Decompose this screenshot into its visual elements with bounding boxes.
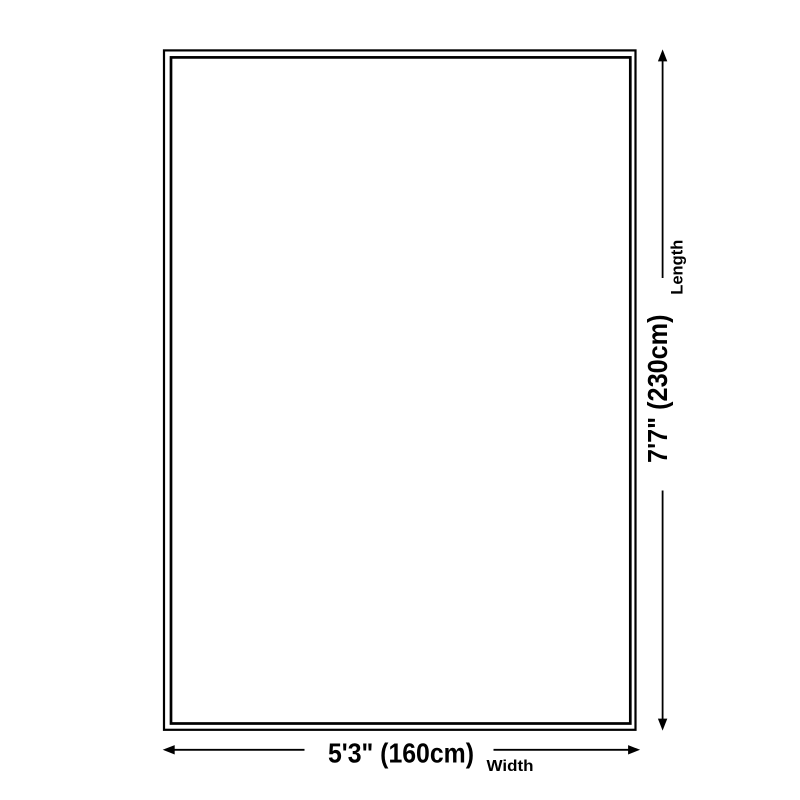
svg-text:7'7" (230cm): 7'7" (230cm) bbox=[642, 314, 673, 463]
svg-text:Width: Width bbox=[487, 758, 534, 775]
svg-text:Length: Length bbox=[667, 240, 686, 295]
svg-text:5'3" (160cm): 5'3" (160cm) bbox=[328, 737, 474, 768]
